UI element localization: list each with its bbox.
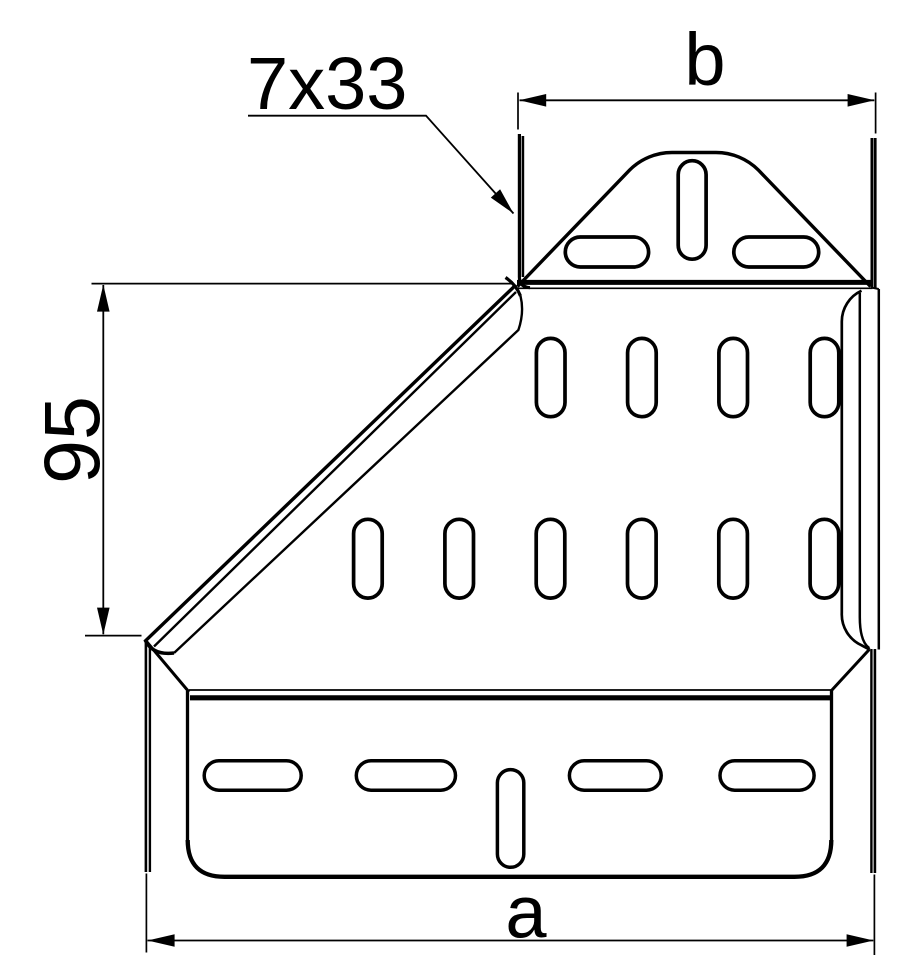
svg-text:7x33: 7x33	[247, 42, 407, 125]
svg-text:b: b	[684, 18, 725, 101]
svg-text:a: a	[505, 871, 547, 954]
svg-text:95: 95	[27, 396, 116, 484]
